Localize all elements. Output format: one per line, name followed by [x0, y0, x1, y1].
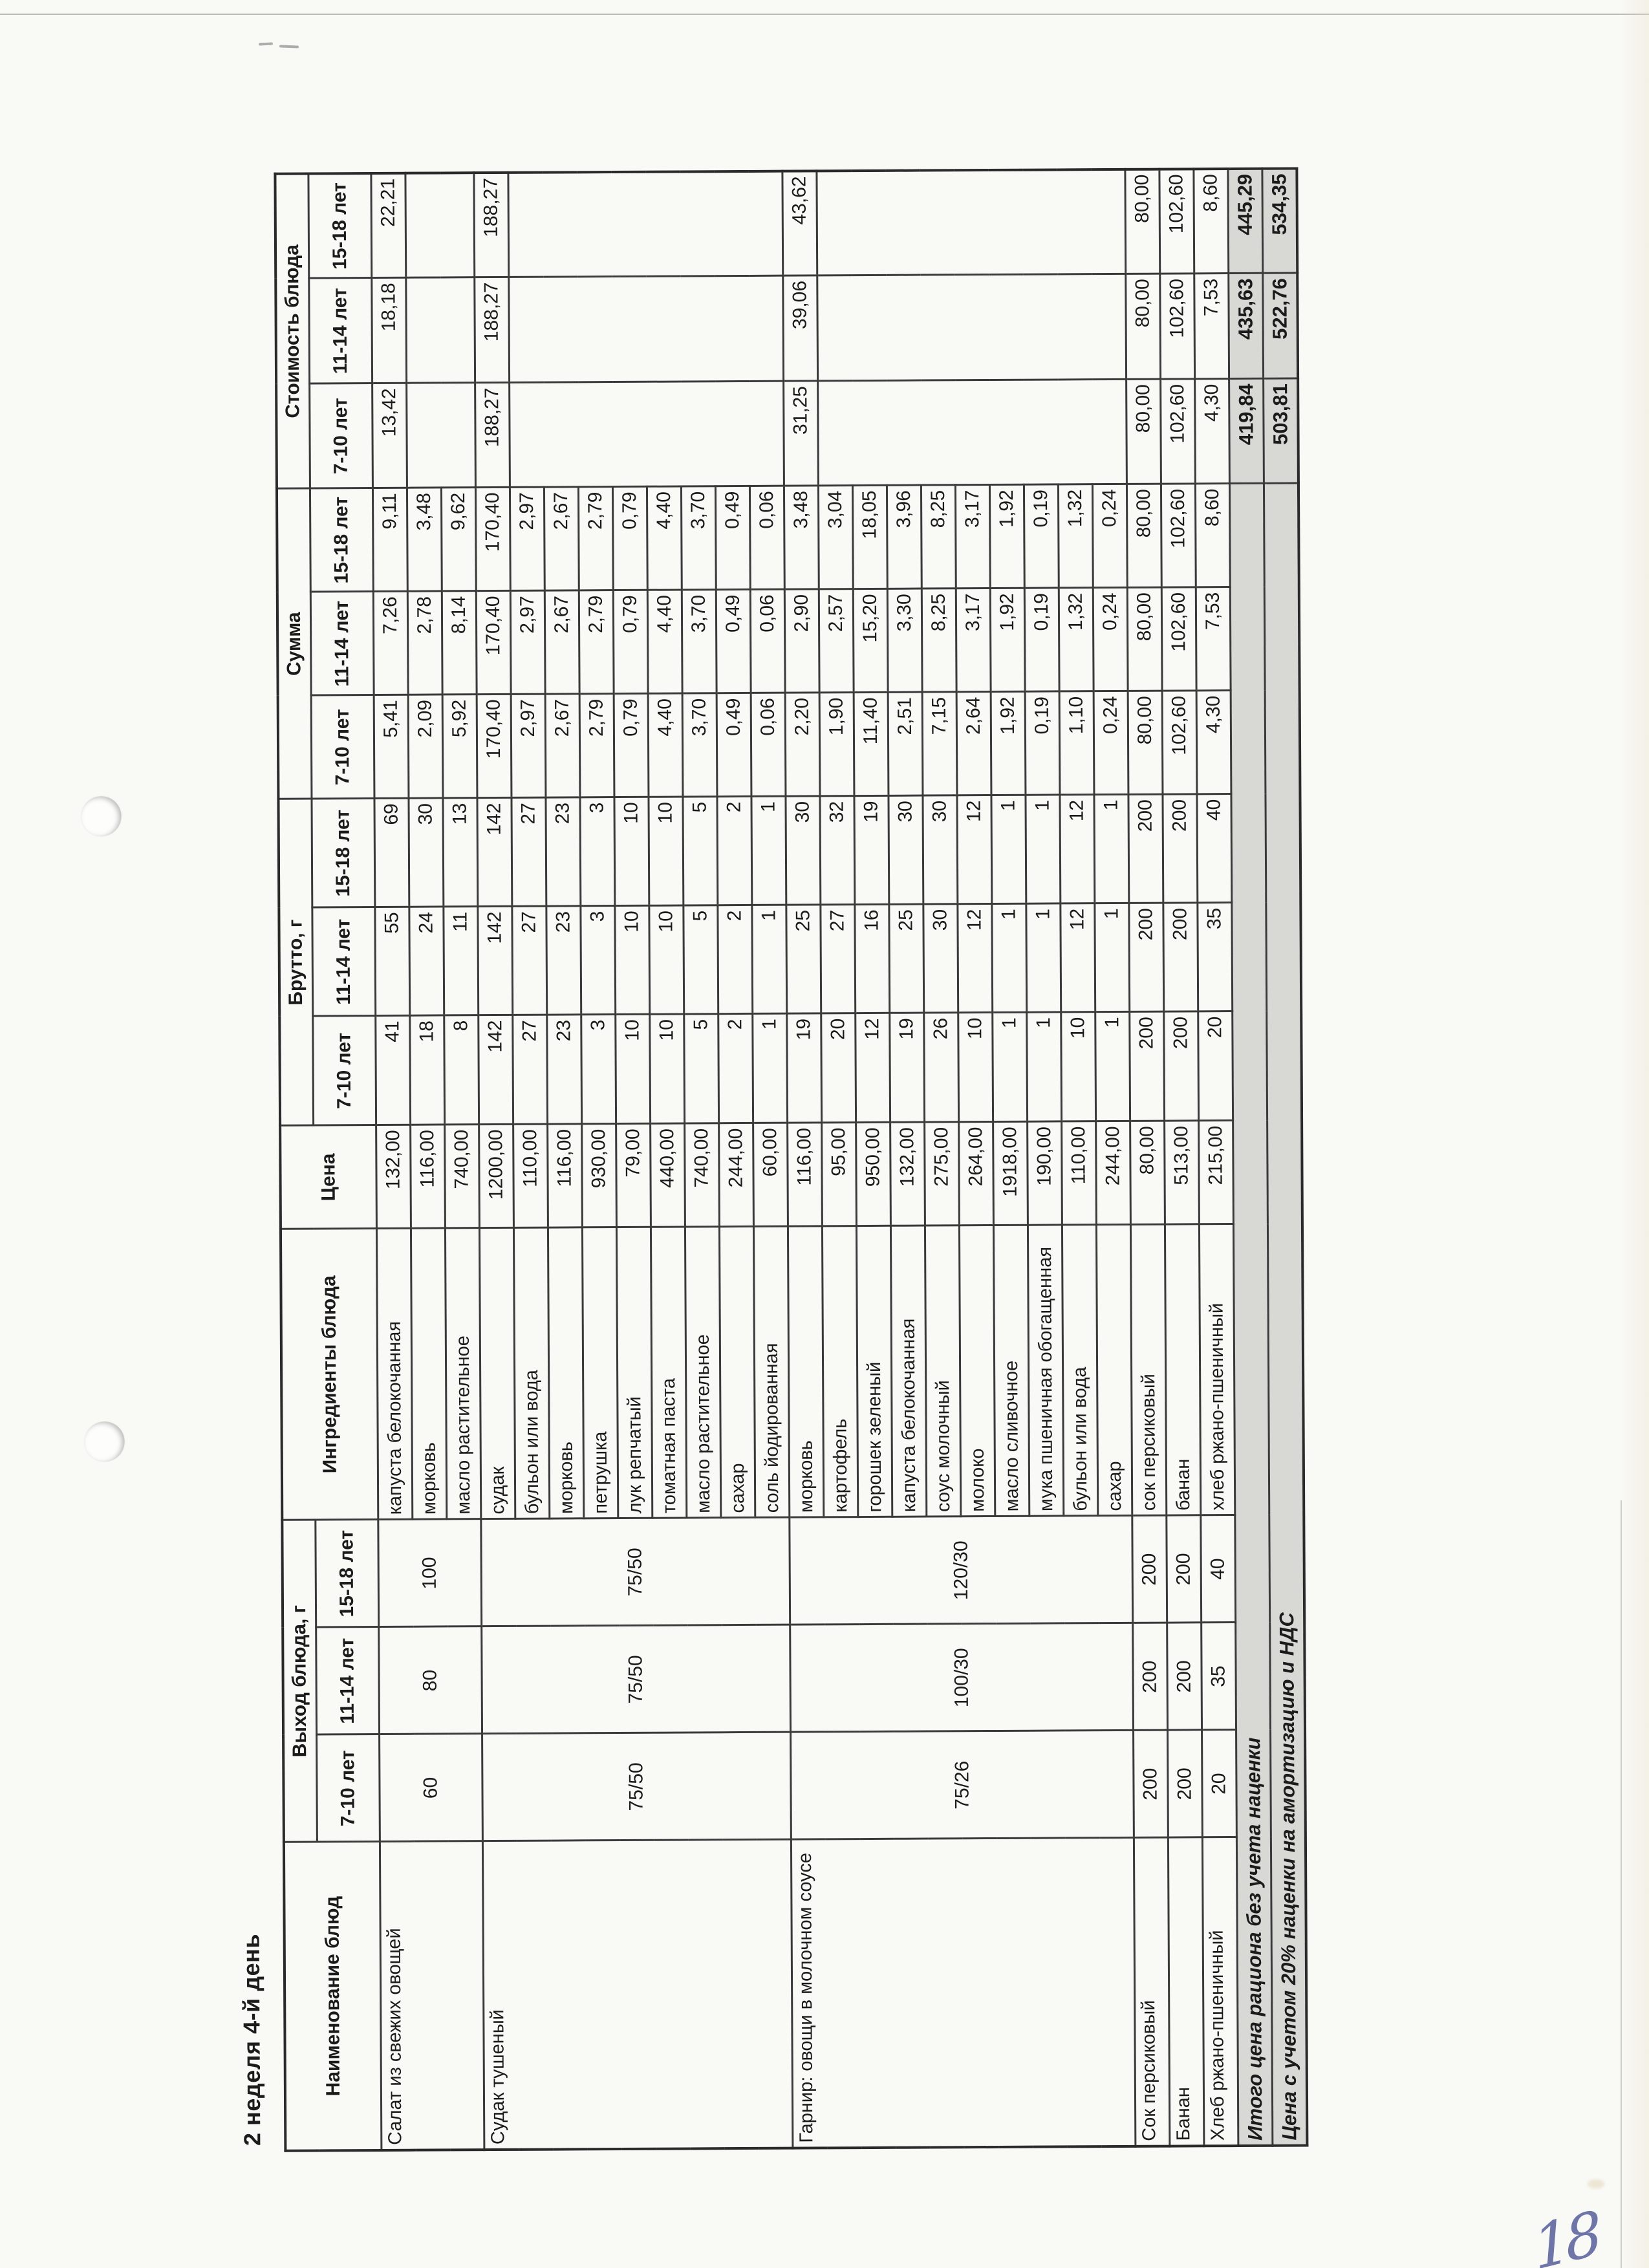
cell-sum: 0,79: [612, 487, 647, 590]
cell-sum: 2,97: [510, 488, 544, 591]
cell-sum: 2,67: [544, 590, 579, 694]
cell-brutto: 142: [477, 798, 512, 907]
cell-yield: 200: [1133, 1623, 1168, 1731]
cell-sum: 0,24: [1093, 588, 1128, 691]
cell-brutto: 30: [889, 796, 923, 905]
cell-sum: 2,79: [579, 694, 614, 797]
cell-sum: 2,20: [785, 693, 820, 796]
cell-price: 740,00: [685, 1123, 720, 1227]
cell-sum: 80,00: [1126, 484, 1161, 588]
cell-yield: 40: [1201, 1515, 1236, 1623]
cell-brutto: 30: [923, 795, 958, 904]
cell-cost-empty: [817, 169, 1126, 276]
cell-ingredient: морковь: [788, 1226, 823, 1517]
cell-sum: 3,48: [784, 486, 819, 589]
cell-brutto: 23: [547, 1015, 582, 1124]
cell-brutto: 2: [718, 905, 753, 1014]
cell-sum: 1,32: [1059, 588, 1094, 691]
cell-yield: 75/26: [791, 1731, 1134, 1840]
cell-sum: 3,70: [682, 590, 717, 693]
cell-ingredient: мука пшеничная обогащенная: [1028, 1225, 1063, 1516]
cell-sum: 2,67: [544, 487, 579, 590]
cell-total-value: 445,29: [1228, 169, 1263, 274]
cell-price: 132,00: [376, 1125, 411, 1229]
cell-ingredient: судак: [479, 1228, 515, 1519]
cell-sum: 3,48: [407, 488, 442, 591]
cell-price: 275,00: [925, 1122, 960, 1226]
cell-sum: 2,78: [407, 591, 442, 695]
cell-price: 244,00: [719, 1123, 754, 1227]
cell-sum: 0,24: [1094, 691, 1128, 795]
cell-brutto: 142: [479, 1015, 513, 1125]
cell-sum: 80,00: [1127, 588, 1162, 691]
cell-cost: 80,00: [1126, 274, 1161, 380]
cell-brutto: 10: [615, 906, 650, 1015]
col-header-age: 11-14 лет: [312, 907, 376, 1017]
cell-cost: 188,27: [474, 173, 509, 277]
cell-sum: 0,19: [1025, 691, 1060, 795]
cell-sum: 0,79: [614, 694, 649, 797]
cell-brutto: 12: [1061, 903, 1095, 1012]
cell-brutto: 10: [649, 797, 684, 905]
cell-cost-empty: [406, 277, 475, 383]
document-title: 2 неделя 4-й день: [238, 1934, 266, 2146]
cell-sum: 5,92: [442, 695, 477, 798]
scanned-page: 2 неделя 4-й день Наименование блюдВыход…: [0, 0, 1649, 2268]
cell-cost-empty: [510, 382, 784, 488]
menu-table: Наименование блюдВыход блюда, гИнгредиен…: [274, 167, 1308, 2152]
cell-brutto: 2: [718, 1014, 753, 1123]
cell-ingredient: петрушка: [582, 1227, 618, 1518]
cell-ingredient: капуста белокочанная: [376, 1229, 412, 1520]
cell-ingredient: соль йодированная: [753, 1227, 789, 1518]
cell-yield: 75/50: [482, 1733, 792, 1841]
cell-yield: 200: [1168, 1730, 1203, 1837]
cell-sum: 7,26: [373, 592, 408, 695]
col-header-price: Цена: [280, 1125, 376, 1229]
cell-brutto: 10: [616, 1015, 651, 1124]
cell-brutto: 3: [581, 1015, 616, 1124]
cell-sum: 7,15: [922, 692, 957, 795]
cell-ingredient: хлеб ржано-пшеничный: [1199, 1224, 1234, 1515]
cell-price: 1200,00: [479, 1125, 514, 1228]
cell-brutto: 55: [375, 907, 410, 1016]
cell-cost: 13,42: [372, 383, 407, 488]
cell-ingredient: сок персиковый: [1130, 1225, 1166, 1516]
cell-price: 264,00: [959, 1122, 994, 1226]
cell-brutto: 5: [683, 797, 718, 905]
cell-brutto: 200: [1164, 1011, 1199, 1121]
cell-brutto: 5: [684, 1014, 719, 1123]
cell-brutto: 1: [753, 1014, 788, 1123]
cell-price: 513,00: [1165, 1121, 1200, 1224]
cell-yield: 200: [1132, 1516, 1167, 1623]
cell-cost: 4,30: [1195, 379, 1230, 484]
cell-sum: 2,67: [545, 694, 580, 797]
cell-price: 215,00: [1199, 1121, 1234, 1224]
cell-brutto: 1: [1026, 903, 1061, 1012]
cell-ingredient: масло растительное: [445, 1228, 480, 1519]
cell-yield: 80: [379, 1626, 482, 1734]
cell-brutto: 25: [786, 905, 821, 1013]
cell-sum: 102,60: [1162, 691, 1197, 794]
cell-cost: 22,21: [371, 173, 406, 278]
cell-sum: 3,70: [682, 693, 717, 797]
cell-brutto: 12: [856, 1013, 890, 1123]
cell-brutto: 8: [444, 1015, 479, 1125]
col-header-cost-group: Стоимость блюда: [275, 173, 310, 488]
cell-cost: 102,60: [1159, 169, 1194, 274]
cell-ingredient: сахар: [1096, 1225, 1132, 1516]
cell-price: 116,00: [548, 1124, 583, 1227]
cell-cost: 7,53: [1194, 274, 1229, 379]
cell-brutto: 24: [409, 907, 444, 1015]
cell-brutto: 23: [546, 906, 581, 1015]
cell-brutto: 3: [581, 906, 616, 1015]
cell-cost: 102,60: [1160, 274, 1195, 379]
cell-brutto: 30: [786, 796, 821, 905]
cell-sum: 102,60: [1161, 484, 1196, 587]
punch-hole: [81, 796, 121, 836]
cell-price: 110,00: [513, 1125, 548, 1228]
cell-brutto: 10: [649, 905, 684, 1014]
col-header-age: 11-14 лет: [316, 1627, 380, 1735]
cell-cost: 43,62: [782, 171, 817, 275]
cell-sum: 2,97: [511, 695, 546, 798]
cell-brutto: 1: [1027, 1012, 1062, 1121]
col-header-age: 15-18 лет: [312, 799, 375, 908]
cell-dish-name: Банан: [1168, 1837, 1203, 2146]
cell-cost-empty: [508, 171, 783, 277]
cell-brutto: 32: [820, 796, 855, 905]
cell-brutto: 27: [512, 907, 547, 1015]
cell-ingredient: лук репчатый: [616, 1227, 652, 1518]
cell-sum: 3,70: [681, 486, 716, 590]
cell-sum: 3,30: [887, 589, 922, 693]
cell-brutto: 1: [991, 795, 1026, 904]
col-header-sum-group: Сумма: [277, 488, 312, 799]
cell-cost: 102,60: [1161, 379, 1196, 484]
cell-price: 930,00: [582, 1124, 617, 1227]
cell-brutto: 27: [821, 905, 856, 1013]
cell-total-value: 503,81: [1264, 378, 1299, 483]
cell-cost-empty: [817, 274, 1126, 381]
cell-ingredient: капуста белокочанная: [890, 1226, 926, 1517]
cell-sum: 3,17: [956, 589, 991, 692]
cell-sum: 170,40: [475, 488, 510, 591]
cell-brutto: 41: [376, 1016, 411, 1125]
cell-brutto: 20: [821, 1013, 856, 1123]
cell-ingredient: масло растительное: [685, 1227, 720, 1518]
cell-yield: 120/30: [790, 1516, 1133, 1625]
cell-sum: 3,96: [887, 486, 921, 589]
cell-cost: 18,18: [372, 278, 407, 383]
cell-sum: 0,06: [749, 486, 784, 590]
cell-brutto: 10: [614, 797, 649, 906]
cell-cost: 8,60: [1194, 169, 1229, 274]
cell-brutto: 2: [717, 797, 752, 905]
cell-price: 79,00: [616, 1124, 651, 1227]
cell-brutto: 142: [478, 907, 513, 1015]
cell-ingredient: картофель: [822, 1226, 857, 1517]
cell-brutto: 5: [684, 905, 718, 1014]
cell-cost: 188,27: [475, 277, 510, 383]
cell-sum: 4,30: [1196, 691, 1231, 794]
cell-brutto: 19: [890, 1013, 925, 1123]
cell-yield: 20: [1202, 1730, 1237, 1837]
cell-sum: 3,04: [818, 486, 853, 589]
cell-dish-name: Сок персиковый: [1134, 1838, 1169, 2146]
cell-sum: 0,49: [715, 486, 750, 590]
cell-cost: 31,25: [784, 381, 819, 486]
col-header-age: 7-10 лет: [311, 695, 374, 799]
cell-ingredient: сахар: [719, 1227, 755, 1518]
cell-yield: 200: [1134, 1731, 1169, 1838]
cell-brutto: 12: [957, 795, 992, 904]
cell-brutto: 19: [854, 796, 889, 905]
cell-brutto: 1: [1095, 1012, 1130, 1121]
cell-sum: 0,49: [717, 693, 751, 797]
cell-cost-empty: [818, 380, 1127, 486]
cell-sum: 0,06: [750, 590, 785, 693]
col-header-age: 15-18 лет: [308, 173, 372, 279]
cell-price: 116,00: [411, 1125, 446, 1228]
cell-yield: 35: [1202, 1623, 1236, 1730]
cell-sum: 1,92: [990, 589, 1025, 692]
cell-ingredient: бульон или вода: [1062, 1225, 1097, 1516]
cell-sum: 2,09: [408, 695, 443, 798]
cell-sum: 9,62: [441, 488, 476, 591]
cell-brutto: 19: [787, 1013, 822, 1123]
cell-sum: 0,24: [1092, 484, 1127, 588]
cell-sum: 0,79: [613, 590, 648, 694]
cell-ingredient: морковь: [548, 1227, 583, 1518]
col-header-age: 11-14 лет: [310, 592, 374, 696]
col-header-brutto-group: Брутто, г: [278, 799, 313, 1125]
cell-sum: 8,25: [921, 485, 956, 589]
cell-sum: 0,06: [751, 693, 786, 797]
cell-brutto: 40: [1197, 794, 1232, 903]
cell-price: 1918,00: [993, 1122, 1028, 1226]
cell-ingredient: соус молочный: [925, 1226, 960, 1517]
cell-yield: 75/50: [482, 1625, 791, 1734]
cell-cost-empty: [509, 276, 784, 383]
cell-yield: 75/50: [481, 1518, 790, 1626]
scan-smudge: [1588, 2179, 1604, 2188]
cell-brutto: 1: [1026, 795, 1061, 903]
cell-sum: 5,41: [374, 695, 409, 799]
cell-sum: 2,79: [578, 487, 613, 590]
col-header-age: 15-18 лет: [316, 1520, 379, 1628]
cell-sum: 2,79: [579, 590, 614, 694]
cell-brutto: 1: [1094, 795, 1129, 903]
cell-sum: 2,51: [888, 693, 923, 796]
cell-sum: 4,40: [647, 486, 682, 590]
cell-sum: 80,00: [1128, 691, 1163, 795]
cell-brutto: 27: [513, 1015, 548, 1125]
cell-brutto: 18: [410, 1015, 445, 1125]
cell-brutto: 200: [1163, 903, 1198, 1011]
cell-yield: 200: [1167, 1623, 1202, 1730]
cell-sum: 8,60: [1195, 484, 1230, 587]
cell-sum: 4,40: [647, 590, 682, 693]
cell-price: 80,00: [1130, 1121, 1165, 1225]
cell-sum: 8,25: [921, 589, 956, 692]
cell-ingredient: масло сливочное: [993, 1226, 1029, 1517]
cell-price: 440,00: [651, 1123, 685, 1227]
cell-sum: 18,05: [852, 486, 887, 589]
cell-price: 244,00: [1096, 1121, 1131, 1225]
cell-brutto: 27: [512, 798, 546, 907]
cell-sum: 1,92: [989, 485, 1024, 589]
cell-price: 95,00: [822, 1123, 857, 1226]
cell-brutto: 35: [1198, 903, 1233, 1011]
col-header-age: 11-14 лет: [309, 278, 372, 384]
cell-cost: 80,00: [1126, 380, 1161, 484]
cell-ingredient: томатная паста: [651, 1227, 686, 1518]
cell-sum: 15,20: [853, 589, 888, 693]
cell-brutto: 30: [409, 798, 444, 907]
cell-brutto: 1: [992, 904, 1027, 1013]
cell-sum: 2,97: [510, 591, 545, 695]
cell-dish-name: Салат из свежих овощей: [380, 1841, 484, 2150]
cell-ingredient: молоко: [959, 1226, 995, 1517]
cell-price: 740,00: [445, 1125, 480, 1228]
col-header-age: 7-10 лет: [317, 1734, 380, 1842]
cell-total-value: 435,63: [1229, 274, 1264, 379]
punch-hole: [85, 1421, 125, 1462]
cell-cost-empty: [407, 383, 476, 488]
cell-brutto: 69: [374, 799, 409, 907]
cell-price: 132,00: [890, 1123, 925, 1226]
cell-sum: 2,64: [956, 692, 991, 795]
cell-dish-name: Гарнир: овощи в молочном соусе: [791, 1838, 1135, 2148]
cell-brutto: 200: [1129, 903, 1164, 1012]
cell-ingredient: морковь: [411, 1228, 446, 1519]
cell-sum: 0,19: [1024, 484, 1059, 588]
cell-brutto: 200: [1130, 1012, 1165, 1121]
cell-price: 190,00: [1028, 1121, 1062, 1225]
cell-yield: 100/30: [790, 1623, 1134, 1733]
cell-brutto: 12: [1060, 795, 1095, 903]
cell-total-value: 534,35: [1262, 168, 1297, 273]
cell-cost: 188,27: [475, 383, 510, 488]
cell-brutto: 200: [1128, 795, 1163, 903]
cell-sum: 3,17: [955, 485, 990, 589]
col-header-age: 7-10 лет: [313, 1016, 376, 1126]
cell-brutto: 25: [889, 905, 924, 1013]
cell-price: 950,00: [856, 1123, 891, 1226]
cell-brutto: 10: [1061, 1012, 1096, 1121]
cell-price: 116,00: [788, 1123, 823, 1226]
cell-ingredient: бульон или вода: [513, 1228, 549, 1519]
cell-brutto: 16: [855, 905, 890, 1013]
cell-brutto: 1: [752, 905, 787, 1014]
cell-cost-empty: [405, 173, 475, 278]
cell-brutto: 26: [924, 1013, 959, 1122]
cell-sum: 170,40: [477, 695, 512, 798]
cell-sum: 2,90: [784, 589, 819, 693]
cell-yield: 100: [378, 1519, 482, 1627]
col-header-age: 7-10 лет: [310, 383, 373, 489]
cell-dish-name: Хлеб ржано-пшеничный: [1202, 1837, 1238, 2146]
cell-sum: 2,57: [819, 589, 854, 693]
cell-sum: 1,90: [819, 693, 854, 796]
cell-total-value: 419,84: [1229, 379, 1264, 484]
cell-brutto: 13: [443, 798, 478, 907]
cell-sum: 8,14: [442, 591, 477, 695]
cell-brutto: 10: [650, 1014, 685, 1123]
cell-total-value: 522,76: [1263, 273, 1298, 378]
cell-brutto: 1: [751, 797, 786, 905]
cell-yield: 60: [380, 1734, 483, 1842]
cell-brutto: 30: [923, 904, 958, 1013]
cell-sum: 9,11: [372, 488, 407, 592]
cell-sum: 102,60: [1161, 587, 1196, 691]
cell-sum: 1,10: [1059, 691, 1094, 795]
cell-sum: 7,53: [1196, 587, 1231, 691]
cell-dish-name: Судак тушеный: [482, 1840, 792, 2150]
cell-price: 110,00: [1062, 1121, 1097, 1225]
cell-brutto: 20: [1198, 1011, 1233, 1121]
cell-sum: 11,40: [854, 693, 889, 796]
cell-brutto: 3: [580, 797, 615, 906]
cell-brutto: 23: [546, 797, 581, 906]
cell-sum: 1,32: [1058, 484, 1093, 588]
cell-brutto: 11: [444, 907, 479, 1015]
cell-yield: 200: [1167, 1515, 1202, 1623]
paper-crease-line: [1621, 1500, 1622, 2268]
cell-ingredient: горошек зеленый: [856, 1226, 892, 1517]
cell-brutto: 12: [958, 904, 993, 1013]
cell-brutto: 1: [1095, 903, 1130, 1012]
col-header-dish: Наименование блюд: [284, 1842, 382, 2151]
cell-sum: 4,40: [648, 693, 683, 797]
cell-brutto: 10: [958, 1013, 993, 1122]
cell-sum: 1,92: [991, 692, 1026, 795]
cell-sum: 170,40: [476, 591, 511, 695]
cell-cost: 80,00: [1125, 169, 1160, 274]
col-header-age: 15-18 лет: [310, 488, 373, 592]
cell-cost: 39,06: [783, 275, 818, 381]
col-header-yield-group: Выход блюда, г: [282, 1520, 317, 1842]
cell-brutto: 200: [1163, 794, 1198, 903]
cell-price: 60,00: [753, 1123, 788, 1227]
cell-sum: 0,19: [1024, 588, 1059, 691]
col-header-ingredients: Ингредиенты блюда: [281, 1229, 378, 1520]
rotated-sheet: 2 неделя 4-й день Наименование блюдВыход…: [0, 0, 1649, 2268]
cell-brutto: 1: [993, 1013, 1028, 1122]
cell-sum: 0,49: [716, 590, 751, 693]
cell-ingredient: банан: [1165, 1224, 1200, 1515]
